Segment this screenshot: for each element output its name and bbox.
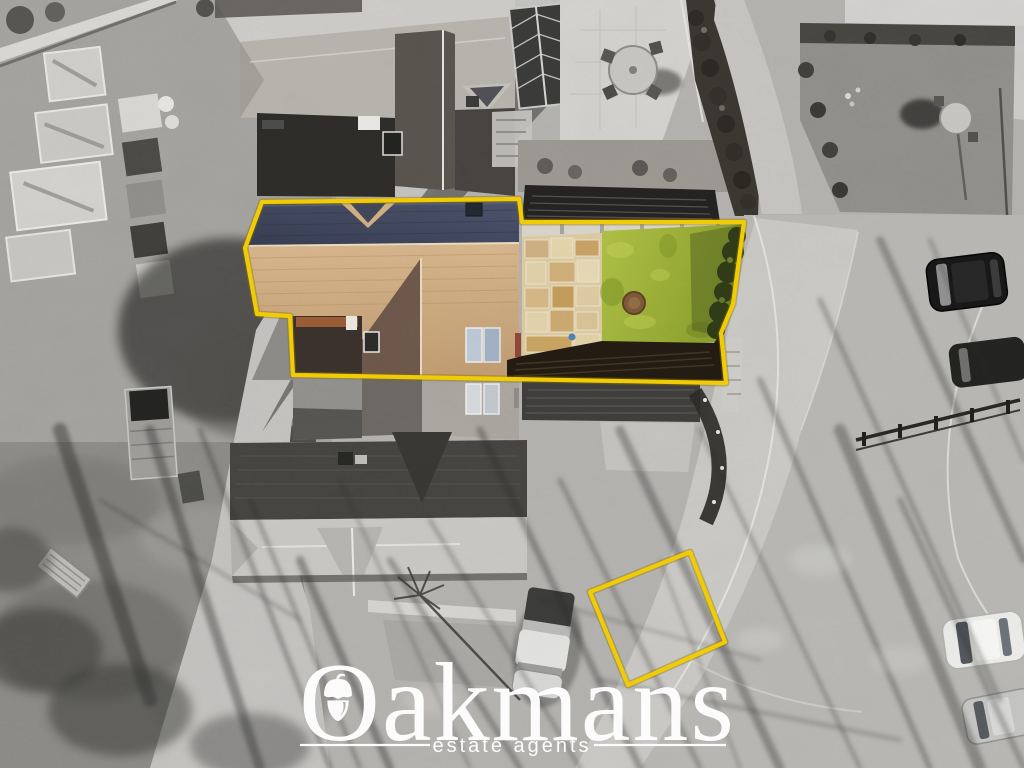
aerial-property-photo: Oakmans estate agents <box>0 0 1024 768</box>
brand-tagline: estate agents <box>432 735 591 757</box>
brand-watermark: Oakmans estate agents <box>0 0 1024 768</box>
